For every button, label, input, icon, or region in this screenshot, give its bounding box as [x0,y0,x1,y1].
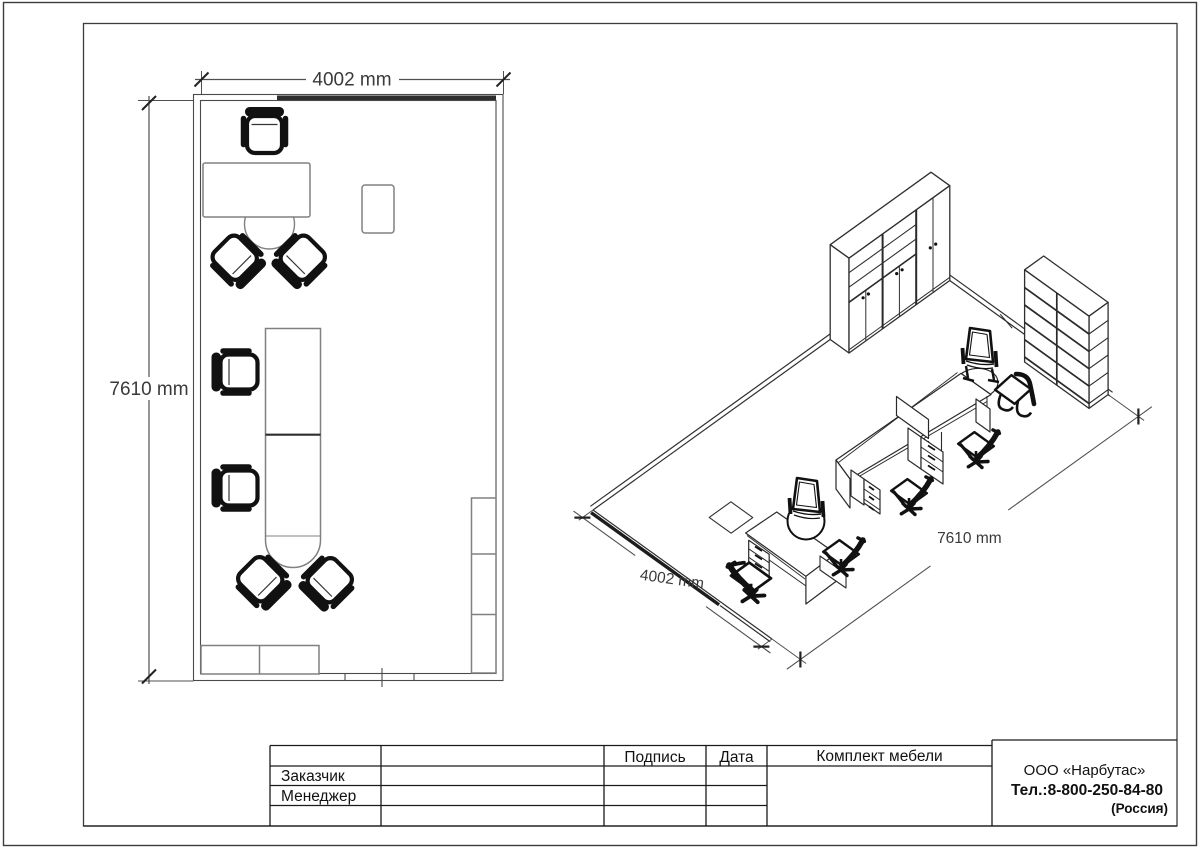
svg-text:Менеджер: Менеджер [281,788,356,805]
svg-text:7610 mm: 7610 mm [937,530,1002,547]
svg-text:Комплект мебели: Комплект мебели [816,748,942,765]
svg-text:Дата: Дата [719,749,754,766]
svg-text:ООО «Нарбутас»: ООО «Нарбутас» [1024,762,1146,779]
svg-text:Подпись: Подпись [624,749,685,766]
svg-text:(Россия): (Россия) [1111,801,1168,816]
svg-text:4002 mm: 4002 mm [312,70,391,91]
svg-text:Заказчик: Заказчик [281,768,345,785]
svg-text:Тел.:8-800-250-84-80: Тел.:8-800-250-84-80 [1011,782,1163,799]
svg-text:7610 mm: 7610 mm [109,379,188,400]
